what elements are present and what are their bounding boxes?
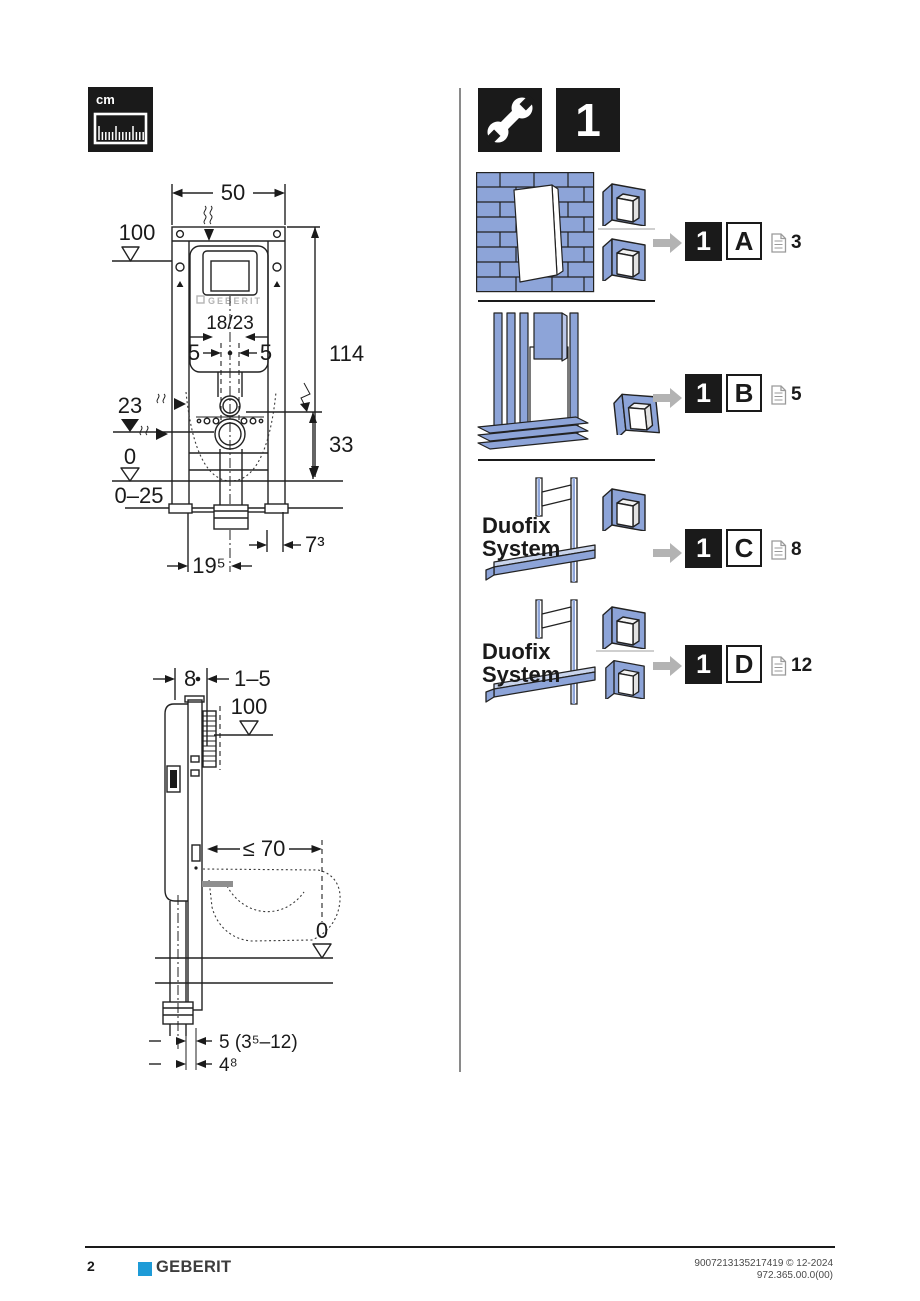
variant-step-badge: 1 [685,529,722,568]
step-badge: 1 [556,88,620,152]
bracket-protector-icon [600,603,648,649]
arrow-right-icon [653,655,683,677]
dim-outlet-height: 33 [329,432,353,457]
dim-width: 50 [221,180,245,205]
variant-letter-badge: D [726,645,762,683]
dim-level-top: 100 [119,220,156,245]
variant-step: 1 [696,378,711,409]
dim-bowl-depth: ≤ 70 [243,836,286,861]
duofix-system-label: Duofix System [482,640,560,686]
dim-outlet-side-offset: 7³ [305,532,325,557]
bracket-protector-icon [600,235,648,281]
document-info: 9007213135217419 © 12-2024 972.365.00.0(… [694,1258,833,1281]
geberit-logo-icon [138,1262,152,1276]
dim-outlet-front-offset: 19⁵ [192,553,226,578]
dim-level-outlet: 23 [118,393,142,418]
icon-divider [598,228,655,230]
document-icon [771,540,787,561]
variant-letter: C [735,533,754,564]
bracket-protector-icon [600,180,648,226]
document-icon [771,385,787,406]
variant-letter: B [735,378,754,409]
ruler-icon [93,112,148,146]
row-separator [478,300,655,302]
timber-stud-wall-icon [476,309,592,451]
variant-page-ref: 5 [791,384,802,406]
variant-step-badge: 1 [685,222,722,261]
front-view-drawing: 50 GEBERIT 18/23 5 5 100 114 [85,175,390,590]
cistern-brand-label: GEBERIT [208,296,262,306]
dim-offset-left: 5 [188,340,200,365]
document-number: 9007213135217419 © 12-2024 [694,1258,833,1270]
dim-drain-depth: 5 (3⁵–12) [219,1032,298,1053]
variant-row-d: Duofix System 1 D 12 [460,590,830,720]
variant-letter: A [735,226,754,257]
step-number: 1 [575,93,601,147]
variant-step: 1 [696,533,711,564]
manual-page: { "header": { "units_label": "cm", "step… [0,0,920,1301]
variant-letter-badge: A [726,222,762,260]
duofix-label-line1: Duofix [482,514,560,537]
duofix-system-label: Duofix System [482,514,560,560]
units-badge: cm [88,87,153,152]
dim-level-floor-side: 0 [316,918,328,943]
side-view-drawing: 8 1–5 100 ≤ 70 0 5 (3⁵–12) [130,650,420,1090]
wrench-icon [478,88,542,152]
geberit-logo-text: GEBERIT [156,1258,231,1277]
variant-letter-badge: C [726,529,762,567]
document-code: 972.365.00.0(00) [694,1270,833,1282]
variant-letter-badge: B [726,374,762,412]
bracket-protector-icon [600,485,648,531]
variant-page-ref: 12 [791,655,812,677]
duofix-label-line1: Duofix [482,640,560,663]
variant-row-b: 1 B 5 [460,303,830,460]
duofix-label-line2: System [482,663,560,686]
variant-step-badge: 1 [685,374,722,413]
page-number: 2 [87,1258,95,1274]
dim-level-top-side: 100 [231,694,268,719]
arrow-right-icon [653,542,683,564]
dim-drain-offset: 4⁸ [219,1055,238,1076]
variant-row-c: Duofix System 1 C 8 [460,462,830,590]
dim-front-buildup: 1–5 [234,666,271,691]
variant-page-ref: 3 [791,232,802,254]
variant-step-badge: 1 [685,645,722,684]
dim-floor-buildup: 0–25 [115,483,164,508]
dim-offset-right: 5 [260,340,272,365]
units-label: cm [96,92,115,107]
dim-frame-depth: 8 [184,666,196,691]
assembly-badge [478,88,542,152]
row-separator [478,459,655,461]
variant-row-a: 1 A 3 [460,170,830,300]
footer-rule [85,1246,835,1248]
document-icon [771,233,787,254]
arrow-right-icon [653,232,683,254]
masonry-wall-icon [476,172,596,294]
arrow-right-icon [653,387,683,409]
variant-step: 1 [696,649,711,680]
duofix-label-line2: System [482,537,560,560]
dim-level-floor: 0 [124,444,136,469]
dim-height: 114 [329,341,364,366]
document-icon [771,656,787,677]
variant-step: 1 [696,226,711,257]
icon-divider [596,650,654,652]
variant-page-ref: 8 [791,539,802,561]
bracket-protector-icon [603,657,647,699]
variant-letter: D [735,649,754,680]
